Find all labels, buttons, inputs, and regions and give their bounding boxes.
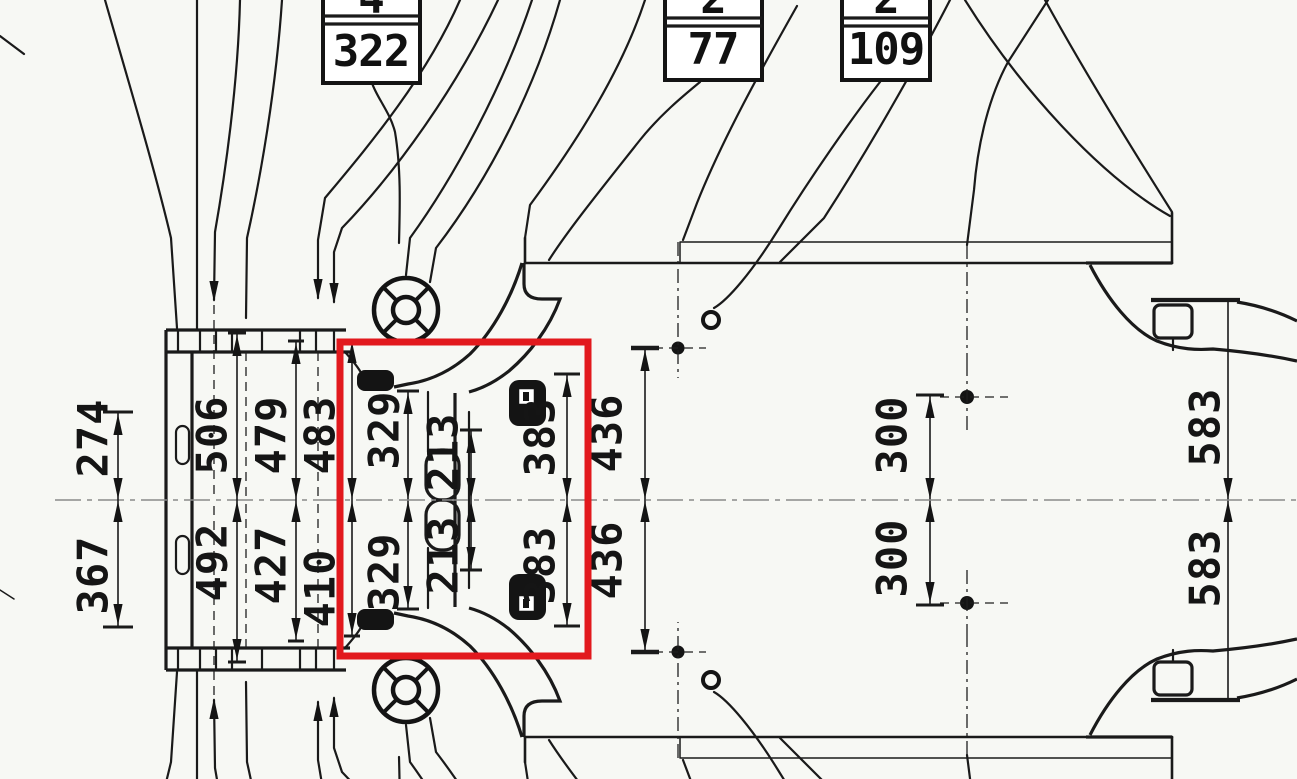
dim-label-col3-top: 479 (247, 396, 296, 475)
dim-label-col1-bottom: 367 (69, 536, 118, 615)
edge-mark-left (0, 590, 14, 599)
bracket-block (357, 370, 394, 391)
callout-1-qty: 4 (358, 0, 384, 24)
dim-label-col2-bottom: 492 (188, 523, 237, 602)
dim-label-col1-top: 274 (69, 399, 118, 478)
hole-marker-right (940, 362, 1008, 432)
dim-label-col5-top: 329 (360, 391, 409, 470)
callout-3-qty: 2 (873, 0, 899, 24)
callout-3-value: 109 (848, 24, 924, 75)
dim-label-col3-bottom: 427 (247, 526, 296, 605)
frame-rail (525, 238, 1172, 263)
grommet-symbol (374, 278, 438, 342)
dim-label-col7-bottom: 383 (516, 526, 565, 605)
dim-label-col2-top: 506 (188, 396, 237, 475)
dim-label-col9-bottom: 300 (868, 519, 917, 598)
leader-lines (105, 0, 1172, 362)
dim-label-col10-bottom: 583 (1181, 529, 1230, 608)
edge-mark-top-left (0, 36, 24, 54)
callout-boxes: 4 322 2 77 2 109 (323, 0, 930, 83)
technical-drawing-page: 274 367 506 492 479 427 483 410 329 329 … (0, 0, 1297, 779)
dim-label-col10-top: 583 (1181, 388, 1230, 467)
dim-label-col6-bottom: 213 (419, 516, 468, 595)
dim-label-col9-top: 300 (868, 396, 917, 475)
dim-label-col6-top: 213 (419, 413, 468, 492)
callout-1-value: 322 (333, 26, 409, 77)
callout-2-value: 77 (688, 24, 739, 75)
frame-drilling-plan-drawing: 274 367 506 492 479 427 483 410 329 329 … (0, 0, 1297, 779)
round-hole (703, 312, 719, 328)
spring-bracket (1090, 213, 1297, 361)
dimension-labels: 274 367 506 492 479 427 483 410 329 329 … (69, 388, 1230, 628)
square-hole (1154, 305, 1192, 338)
callout-2-qty: 2 (700, 0, 726, 24)
dim-label-col5-bottom: 329 (360, 533, 409, 612)
dim-label-col7-top: 383 (516, 398, 565, 477)
